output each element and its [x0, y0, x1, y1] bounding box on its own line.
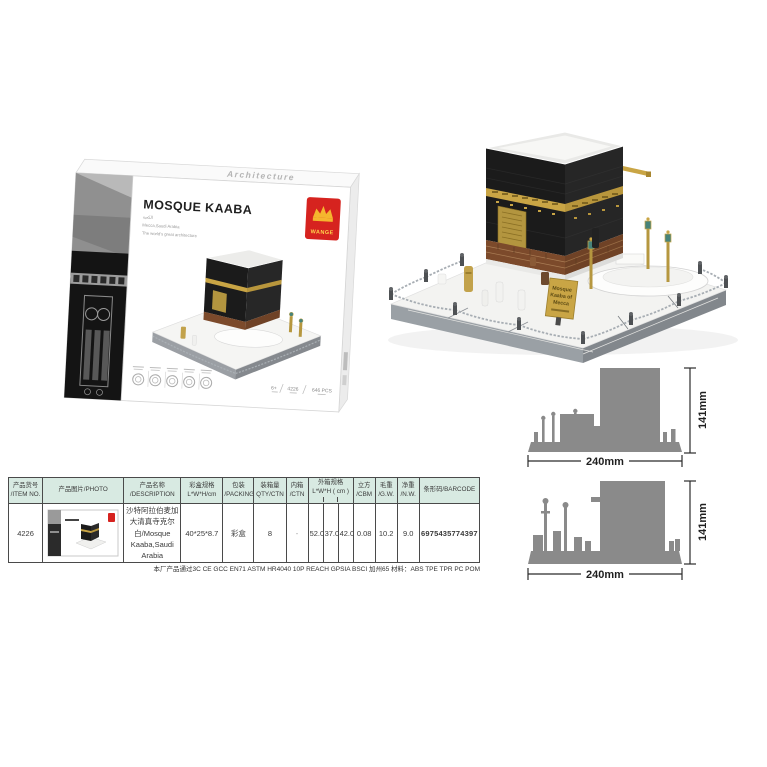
width-label: 240mm [586, 456, 624, 468]
silhouette-shape [528, 481, 682, 564]
header-gw: 毛重/G.W. [375, 478, 397, 504]
rain-spout [623, 166, 650, 177]
silhouette-view-2: 141mm 240mm [503, 471, 739, 585]
cell-box-size: 40*25*8.7 [181, 504, 223, 563]
cell-description: 沙特阿拉伯麦加大清真寺克尔白/Mosque Kaaba,Saudi Arabia [124, 504, 181, 563]
header-photo: 产品图片/PHOTO [43, 478, 124, 504]
header-description: 产品名称/DESCRIPTION [124, 478, 181, 504]
height-label: 141mm [697, 503, 709, 541]
cell-outer-w: 37.0 [323, 504, 338, 563]
header-qty-ctn: 装箱量QTY/CTN [254, 478, 286, 504]
assembled-model-photo: Mosque Kaaba of Mecca [378, 76, 740, 370]
box-left-kaaba-photo [64, 173, 133, 401]
table-row: 4226 沙特阿拉 [9, 504, 480, 563]
cell-barcode: 6975435774397 [419, 504, 479, 563]
header-packing: 包装/PACKING [223, 478, 254, 504]
wange-logo-text: WANGE [310, 229, 334, 236]
header-nw: 净重/N.W. [397, 478, 419, 504]
header-item-no: 产品货号/ITEM NO. [9, 478, 43, 504]
cell-outer-h: 42.0 [338, 504, 353, 563]
silhouette-view-1: 141mm 240mm [503, 356, 739, 470]
cell-photo [43, 504, 124, 563]
cell-packing: 彩盒 [223, 504, 254, 563]
dimension-diagrams: 141mm 240mm [503, 356, 739, 586]
cell-cbm: 0.08 [353, 504, 375, 563]
certification-note: 本厂产品通过3C CE GCC EN71 ASTM HR4040 10P REA… [8, 563, 480, 573]
header-cbm: 立方/CBM [353, 478, 375, 504]
width-label: 240mm [586, 569, 624, 581]
product-box-photo: Architecture [55, 140, 370, 440]
box-pieces: 646 PCS [312, 387, 333, 394]
height-dimension [684, 481, 696, 564]
header-inner-ctn: 内箱/CTN [286, 478, 308, 504]
box-age: 6+ [271, 385, 277, 391]
wange-logo: WANGE [305, 197, 341, 241]
height-dimension [684, 368, 696, 453]
product-spec-sheet: Architecture [0, 0, 767, 767]
header-outer-carton: 外箱规格L*W*H ( cm ) [308, 478, 353, 504]
cell-inner-ctn: - [286, 504, 308, 563]
header-barcode: 条形码/BARCODE [419, 478, 479, 504]
header-box-size: 彩盒规格L*W*H/cm [181, 478, 223, 504]
height-label: 141mm [697, 391, 709, 429]
box-subtitle-1: الكعبة [143, 214, 154, 220]
box-item-no: 4226 [287, 386, 299, 393]
cell-item-no: 4226 [9, 504, 43, 563]
product-thumbnail [46, 507, 120, 559]
table-header-row: 产品货号/ITEM NO. 产品图片/PHOTO 产品名称/DESCRIPTIO… [9, 478, 480, 504]
lamp-icon [645, 217, 651, 269]
silhouette-shape [528, 368, 682, 452]
cell-nw: 9.0 [397, 504, 419, 563]
cell-qty-ctn: 8 [254, 504, 286, 563]
cell-outer-l: 52.0 [308, 504, 323, 563]
dark-figure [592, 228, 599, 248]
spec-table: 产品货号/ITEM NO. 产品图片/PHOTO 产品名称/DESCRIPTIO… [8, 477, 480, 563]
cell-gw: 10.2 [375, 504, 397, 563]
